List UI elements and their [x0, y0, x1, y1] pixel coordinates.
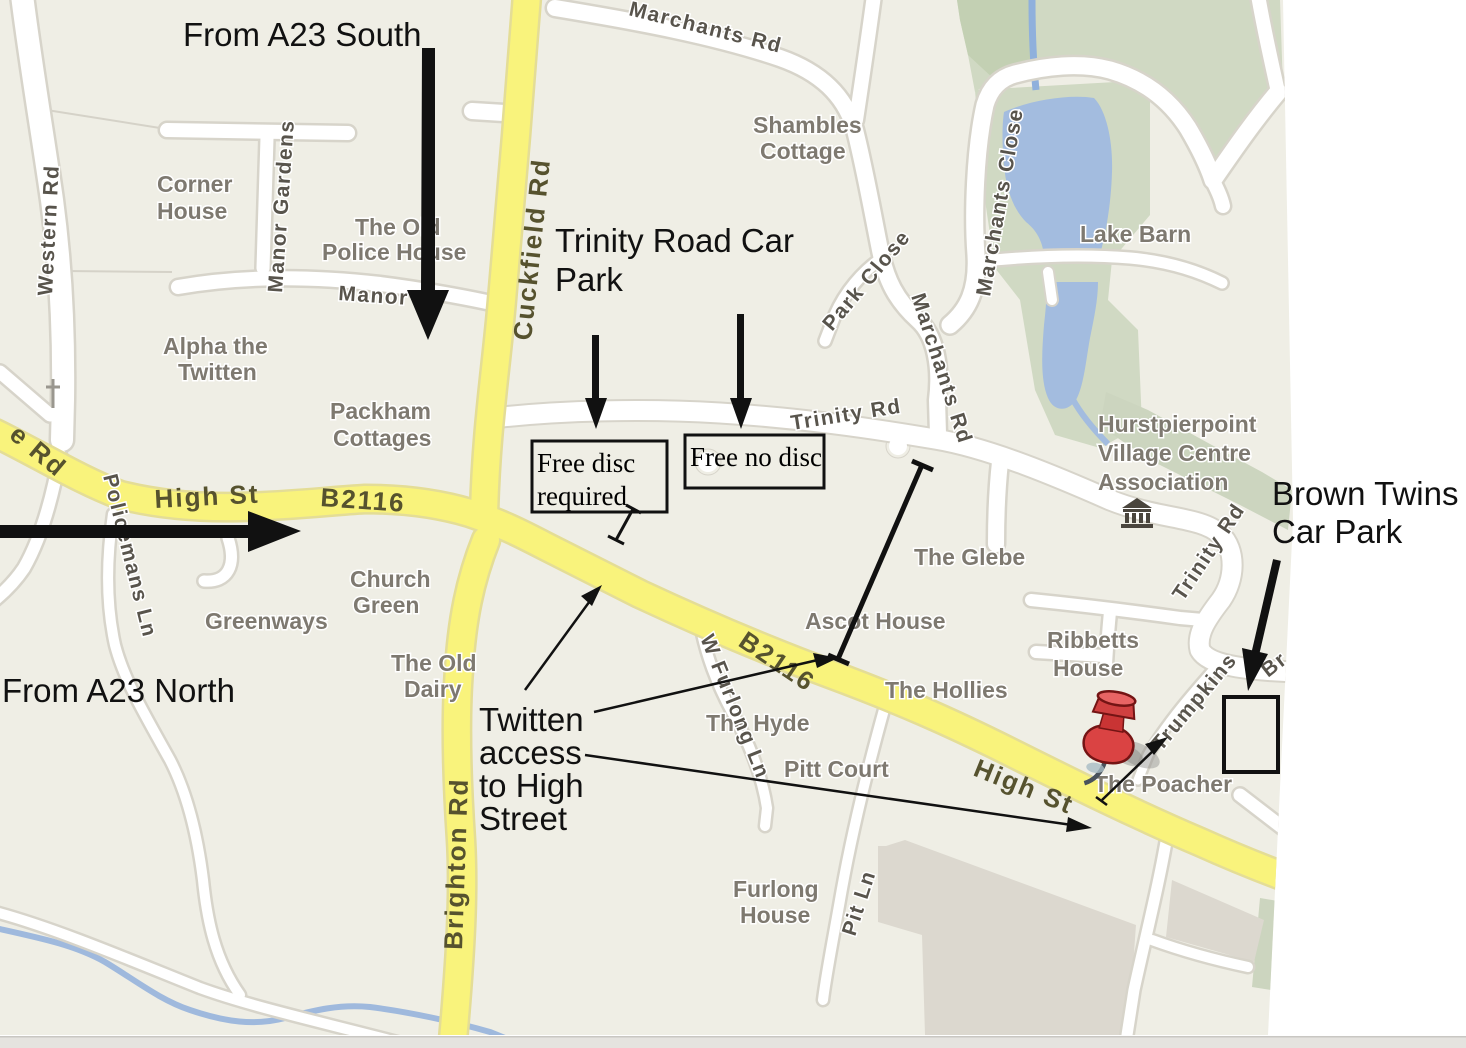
svg-text:Alpha the: Alpha the [163, 333, 268, 359]
svg-text:Hurstpierpoint: Hurstpierpoint [1098, 411, 1257, 437]
svg-text:House: House [1053, 655, 1123, 681]
svg-text:Cottages: Cottages [333, 425, 431, 451]
svg-text:Manor: Manor [338, 282, 410, 310]
svg-text:Twitten: Twitten [479, 701, 584, 738]
svg-text:Greenways: Greenways [205, 608, 328, 634]
svg-text:access: access [479, 734, 582, 771]
svg-text:Free no disc: Free no disc [690, 442, 822, 472]
svg-text:Brighton Rd: Brighton Rd [438, 777, 474, 950]
svg-text:The Old: The Old [391, 650, 477, 676]
svg-text:Brown Twins: Brown Twins [1272, 475, 1458, 512]
svg-text:The Poacher: The Poacher [1094, 771, 1232, 797]
svg-text:Cottage: Cottage [760, 138, 846, 164]
svg-text:House: House [157, 198, 227, 224]
svg-text:to High: to High [479, 767, 584, 804]
svg-text:Car Park: Car Park [1272, 513, 1403, 550]
svg-text:Twitten: Twitten [178, 359, 257, 385]
svg-text:Pitt Court: Pitt Court [784, 756, 889, 782]
svg-text:House: House [740, 902, 810, 928]
svg-text:Dairy: Dairy [404, 676, 462, 702]
svg-text:Park: Park [555, 261, 623, 298]
svg-text:Police House: Police House [322, 239, 466, 265]
svg-text:Ribbetts: Ribbetts [1047, 627, 1139, 653]
svg-text:Shambles: Shambles [753, 112, 862, 138]
svg-text:Furlong: Furlong [733, 876, 819, 902]
svg-text:From A23 North: From A23 North [2, 672, 235, 709]
svg-text:Street: Street [479, 800, 567, 837]
svg-text:required: required [537, 481, 627, 511]
svg-text:The Glebe: The Glebe [914, 544, 1025, 570]
svg-text:Corner: Corner [157, 171, 232, 197]
svg-text:The Hollies: The Hollies [885, 677, 1008, 703]
svg-text:Green: Green [353, 592, 419, 618]
svg-text:From A23 South: From A23 South [183, 16, 421, 53]
svg-text:Church: Church [350, 566, 431, 592]
svg-text:Packham: Packham [330, 398, 431, 424]
svg-text:Ascot House: Ascot House [805, 608, 946, 634]
svg-text:B2116: B2116 [320, 482, 407, 518]
svg-text:Free disc: Free disc [537, 448, 635, 478]
svg-text:High St: High St [154, 479, 260, 514]
svg-text:Lake Barn: Lake Barn [1080, 221, 1191, 247]
svg-text:Association: Association [1098, 469, 1228, 495]
svg-text:Village Centre: Village Centre [1098, 440, 1251, 466]
svg-text:Trinity Road Car: Trinity Road Car [555, 222, 794, 259]
